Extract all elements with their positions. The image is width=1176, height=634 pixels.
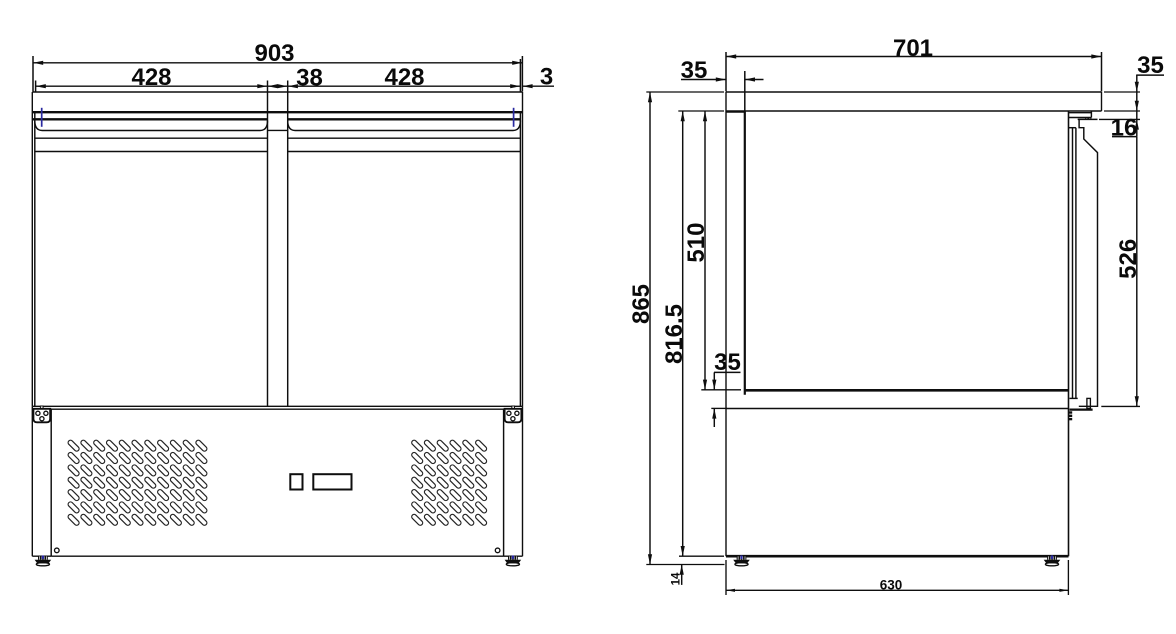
svg-text:428: 428	[131, 64, 171, 91]
svg-text:35: 35	[714, 349, 741, 376]
svg-text:630: 630	[880, 578, 903, 593]
svg-text:35: 35	[681, 57, 708, 84]
svg-text:16: 16	[1111, 115, 1138, 142]
svg-text:865: 865	[628, 284, 655, 324]
svg-text:14: 14	[671, 572, 683, 585]
svg-text:701: 701	[893, 35, 933, 62]
svg-text:38: 38	[296, 64, 323, 91]
svg-text:816.5: 816.5	[661, 304, 688, 364]
svg-text:526: 526	[1115, 239, 1142, 279]
svg-text:428: 428	[384, 64, 424, 91]
svg-text:3: 3	[540, 64, 553, 91]
svg-text:510: 510	[683, 223, 710, 263]
svg-text:35: 35	[1137, 52, 1164, 79]
svg-text:903: 903	[254, 40, 294, 67]
